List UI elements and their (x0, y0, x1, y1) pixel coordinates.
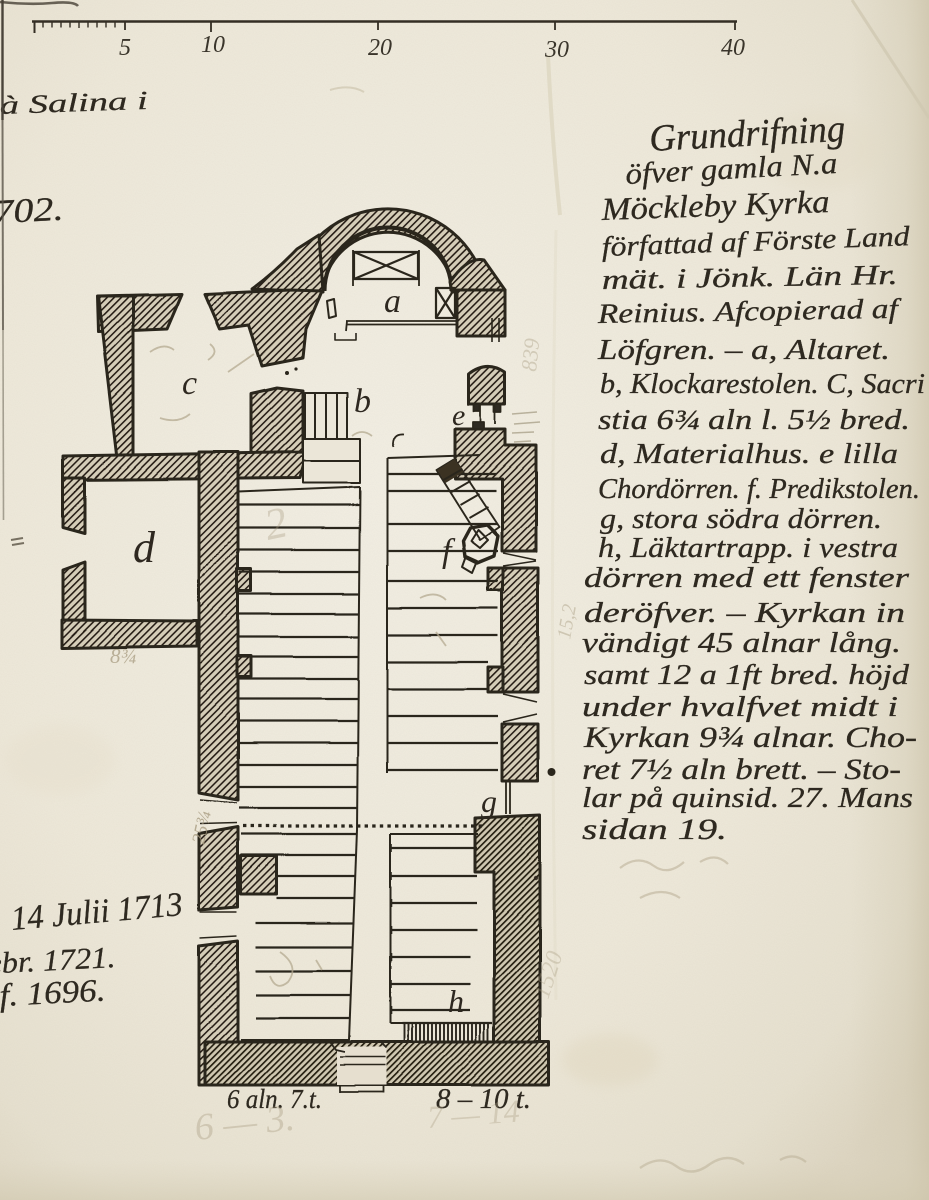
svg-text:under hvalfvet midt i: under hvalfvet midt i (582, 692, 898, 723)
svg-text:d: d (133, 523, 156, 572)
svg-text:mät. i Jönk. Län Hr.: mät. i Jönk. Län Hr. (602, 260, 898, 296)
svg-text:g, stora södra dörren.: g, stora södra dörren. (600, 504, 882, 535)
svg-text:a: a (384, 283, 401, 320)
svg-text:20: 20 (368, 35, 392, 61)
svg-text:deröfver. – Kyrkan in: deröfver. – Kyrkan in (584, 598, 905, 629)
svg-text:702.: 702. (0, 191, 64, 232)
svg-text:10: 10 (201, 32, 225, 58)
svg-text:vändigt 45 alnar lång.: vändigt 45 alnar lång. (582, 628, 901, 659)
svg-text:b, Klockarestolen. C, Sacri: b, Klockarestolen. C, Sacri (600, 369, 925, 400)
svg-text:ret 7½ aln brett. – Sto-: ret 7½ aln brett. – Sto- (582, 753, 901, 786)
svg-text:dörren med ett fenster: dörren med ett fenster (584, 563, 909, 594)
svg-text:5: 5 (119, 35, 131, 61)
svg-text:sidan 19.: sidan 19. (582, 813, 727, 846)
svg-text:b: b (354, 383, 371, 420)
svg-text:7 — 14: 7 — 14 (426, 1093, 521, 1135)
svg-text:f. 1696.: f. 1696. (0, 971, 106, 1012)
svg-text:stia 6¾ aln l. 5½ bred.: stia 6¾ aln l. 5½ bred. (598, 405, 910, 436)
svg-text:Reinius. Afcopierad af: Reinius. Afcopierad af (596, 294, 902, 330)
svg-text:Löfgren. – a, Altaret.: Löfgren. – a, Altaret. (597, 335, 890, 366)
svg-text:Kyrkan 9¾ alnar. Cho-: Kyrkan 9¾ alnar. Cho- (583, 721, 917, 754)
svg-text:40: 40 (721, 35, 745, 61)
svg-text:8¾: 8¾ (110, 644, 137, 668)
svg-text:h, Läktartrapp. i vestra: h, Läktartrapp. i vestra (598, 533, 898, 564)
svg-text:d, Materialhus. e lilla: d, Materialhus. e lilla (600, 439, 898, 470)
svg-text:h: h (448, 983, 464, 1019)
svg-text:e: e (452, 399, 465, 432)
svg-text:lar på quinsid. 27. Mans: lar på quinsid. 27. Mans (582, 783, 913, 814)
svg-text:à Salina i: à Salina i (0, 86, 148, 120)
svg-text:c: c (182, 365, 197, 402)
svg-text:g: g (481, 783, 497, 819)
svg-text:Chordörren. f. Predikstolen.: Chordörren. f. Predikstolen. (598, 474, 920, 505)
svg-text:samt 12 a 1ft bred. höjd: samt 12 a 1ft bred. höjd (584, 660, 910, 691)
svg-text:30: 30 (544, 37, 569, 63)
svg-text:839: 839 (516, 337, 544, 372)
